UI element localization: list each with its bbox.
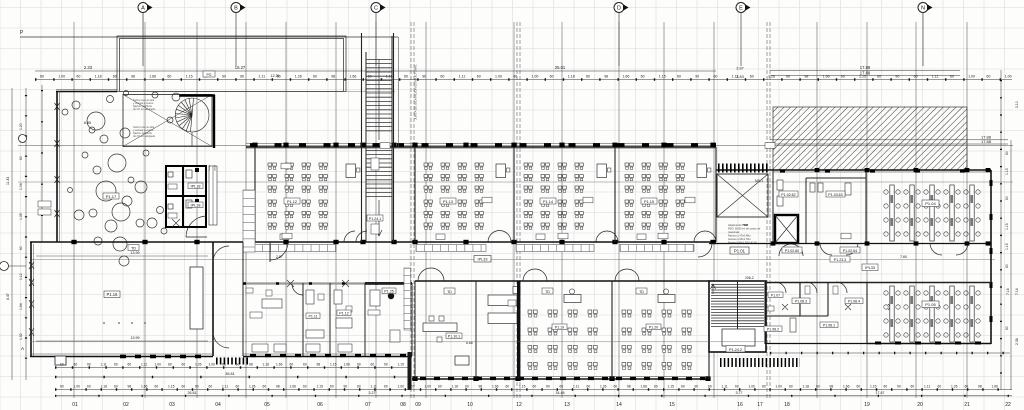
svg-text:1.11: 1.11 [573,384,579,388]
svg-text:03: 03 [169,402,175,408]
svg-text:60: 60 [240,74,244,78]
svg-text:60: 60 [789,384,793,388]
svg-text:1.15: 1.15 [330,362,337,366]
svg-text:1.11: 1.11 [932,74,939,78]
svg-text:P1.17: P1.17 [106,194,117,199]
svg-text:P1.02.62: P1.02.62 [781,193,795,197]
svg-text:60: 60 [677,74,681,78]
svg-text:1.11: 1.11 [722,384,728,388]
svg-text:60: 60 [357,384,361,388]
svg-text:1.15: 1.15 [1005,168,1009,175]
svg-text:1.11: 1.11 [371,384,377,388]
svg-text:15.27: 15.27 [235,65,246,70]
svg-text:15: 15 [669,402,675,408]
svg-text:C: C [374,6,378,12]
svg-text:1.26: 1.26 [249,384,256,388]
svg-text:1.15: 1.15 [870,384,877,388]
svg-text:60: 60 [263,384,267,388]
svg-text:1.11: 1.11 [459,74,466,78]
svg-text:1.66: 1.66 [149,74,156,78]
svg-text:TD: TD [447,290,452,294]
svg-text:60: 60 [1005,151,1009,155]
svg-text:60: 60 [182,384,186,388]
svg-text:60: 60 [950,74,954,78]
svg-text:09: 09 [415,402,421,408]
svg-text:1.15: 1.15 [186,74,193,78]
svg-text:05: 05 [264,402,270,408]
svg-text:02: 02 [123,402,129,408]
svg-text:IPL18: IPL18 [191,204,201,208]
svg-text:60: 60 [40,74,44,78]
svg-text:60: 60 [236,384,240,388]
svg-text:1.15: 1.15 [859,74,866,78]
svg-text:P1.02.64: P1.02.64 [843,249,857,253]
svg-text:90: 90 [344,384,348,388]
svg-text:90: 90 [222,74,226,78]
svg-text:60: 60 [654,384,658,388]
svg-text:17: 17 [757,402,763,408]
svg-text:60: 60 [411,384,415,388]
svg-text:1.15: 1.15 [317,384,324,388]
svg-text:1.12: 1.12 [19,273,23,280]
svg-text:2.87: 2.87 [276,255,283,259]
svg-text:1.11: 1.11 [732,74,739,78]
svg-text:P1.15: P1.15 [644,200,654,204]
svg-text:60: 60 [114,384,118,388]
svg-text:04: 04 [215,402,221,408]
svg-text:Ranura 1.47x0.48m: Ranura 1.47x0.48m [728,234,751,238]
svg-text:1.15: 1.15 [668,384,675,388]
svg-text:1.66: 1.66 [349,74,356,78]
svg-text:60: 60 [113,74,117,78]
svg-text:90: 90 [384,362,388,366]
svg-text:60: 60 [550,74,554,78]
svg-text:60: 60 [168,362,172,366]
svg-text:60: 60 [965,384,969,388]
svg-text:19: 19 [864,402,870,408]
svg-text:de NY en adelgado: de NY en adelgado [133,134,156,138]
svg-text:Alojamiento TRM: Alojamiento TRM [728,223,748,227]
svg-text:98: 98 [804,74,808,78]
svg-text:P1.03.63: P1.03.63 [828,193,842,197]
svg-text:E: E [739,6,743,12]
svg-text:P1.08.3: P1.08.3 [795,300,807,304]
svg-text:1.18: 1.18 [568,74,575,78]
svg-text:25.01: 25.01 [555,65,566,70]
svg-text:01: 01 [72,402,78,408]
svg-text:1.15: 1.15 [398,362,405,366]
svg-text:60: 60 [19,246,23,250]
svg-text:1.66: 1.66 [344,362,351,366]
svg-text:60: 60 [465,384,469,388]
svg-text:3.87: 3.87 [736,67,743,71]
svg-text:B: B [234,6,238,12]
svg-text:60: 60 [438,384,442,388]
svg-text:1.00: 1.00 [58,74,65,78]
svg-text:1.00: 1.00 [531,74,538,78]
svg-text:N: N [921,6,925,12]
svg-text:60: 60 [713,74,717,78]
svg-text:60: 60 [750,74,754,78]
svg-text:60: 60 [506,384,510,388]
svg-text:1.66: 1.66 [492,384,499,388]
svg-text:13.99: 13.99 [131,336,140,340]
svg-text:60: 60 [708,384,712,388]
svg-text:1.04: 1.04 [19,183,23,190]
svg-text:1.00: 1.00 [749,384,756,388]
svg-text:90: 90 [546,384,550,388]
svg-text:P1.16: P1.16 [107,292,119,297]
svg-text:98: 98 [131,74,135,78]
svg-text:90: 90 [695,74,699,78]
svg-text:16: 16 [737,402,743,408]
svg-text:60: 60 [76,74,80,78]
svg-text:7.16: 7.16 [1006,288,1010,295]
svg-text:IPL18: IPL18 [191,185,201,189]
svg-text:26.81: 26.81 [188,391,197,395]
svg-text:60: 60 [222,362,226,366]
svg-text:de NY en adelgado: de NY en adelgado [133,107,156,111]
svg-text:2.33: 2.33 [84,65,93,70]
svg-text:60: 60 [60,362,64,366]
svg-text:1.15: 1.15 [519,384,526,388]
svg-text:P1.02.60: P1.02.60 [785,249,799,253]
svg-text:1.66: 1.66 [276,362,283,366]
svg-text:1.15: 1.15 [168,384,175,388]
svg-text:21: 21 [964,402,970,408]
svg-text:60: 60 [857,384,861,388]
svg-text:P1.01: P1.01 [734,249,746,254]
svg-text:60: 60 [155,384,159,388]
svg-text:7.16: 7.16 [1015,288,1019,295]
svg-text:MS-1: MS-1 [755,179,763,183]
svg-text:1.00: 1.00 [776,384,783,388]
svg-text:90: 90 [695,384,699,388]
svg-text:P1.20: P1.20 [649,325,658,329]
svg-text:1.26: 1.26 [295,74,302,78]
svg-text:P1.11: P1.11 [308,315,317,319]
svg-text:11.43: 11.43 [6,177,10,185]
svg-text:36.81: 36.81 [225,372,235,376]
svg-text:07: 07 [365,402,371,408]
svg-text:1.00: 1.00 [968,74,975,78]
svg-text:12.35: 12.35 [271,74,280,78]
svg-text:34.48: 34.48 [556,391,565,395]
svg-text:60: 60 [681,384,685,388]
svg-text:1.15: 1.15 [1005,243,1009,250]
svg-text:60: 60 [290,362,294,366]
svg-text:98: 98 [479,384,483,388]
svg-text:7.60: 7.60 [900,255,907,259]
svg-text:IPL33: IPL33 [478,258,488,262]
svg-text:1.18: 1.18 [95,74,102,78]
svg-text:P1.10.1: P1.10.1 [448,335,460,339]
svg-text:P1.04: P1.04 [925,201,936,206]
svg-text:1.18: 1.18 [803,384,810,388]
svg-text:P1.23.3: P1.23.3 [834,258,846,262]
svg-text:13.99: 13.99 [131,251,140,255]
svg-text:1.66: 1.66 [141,384,148,388]
svg-text:1.00: 1.00 [74,384,81,388]
svg-text:60: 60 [938,384,942,388]
svg-text:13: 13 [564,402,570,408]
svg-text:206-2: 206-2 [745,276,754,280]
svg-text:90: 90 [422,74,426,78]
svg-text:12: 12 [516,402,522,408]
svg-text:60: 60 [586,74,590,78]
svg-text:D: D [617,6,621,12]
svg-text:1.66: 1.66 [290,384,297,388]
svg-text:60: 60 [911,384,915,388]
svg-text:P1.25: P1.25 [384,290,393,294]
svg-text:1.26: 1.26 [600,384,607,388]
svg-text:1.00: 1.00 [425,384,432,388]
svg-text:P1.12: P1.12 [287,200,297,204]
svg-text:98: 98 [604,74,608,78]
svg-text:60: 60 [1005,326,1009,330]
svg-text:maquinas: maquinas [728,230,740,234]
svg-text:06: 06 [317,402,323,408]
svg-text:17.88: 17.88 [860,65,871,70]
svg-text:60: 60 [357,362,361,366]
svg-text:TD: TD [639,290,644,294]
svg-text:P1.08.2: P1.08.2 [767,328,779,332]
svg-text:1.26: 1.26 [951,384,958,388]
svg-text:P1.12: P1.12 [339,312,348,316]
svg-text:P1.19: P1.19 [555,325,564,329]
svg-text:P1.24.1: P1.24.1 [369,217,381,221]
svg-text:60: 60 [303,362,307,366]
svg-text:1.11: 1.11 [258,74,265,78]
svg-text:1.00: 1.00 [1005,74,1012,78]
svg-text:P1.14: P1.14 [543,200,553,204]
svg-text:P1.24.2: P1.24.2 [729,348,742,352]
svg-text:60: 60 [914,74,918,78]
svg-text:14: 14 [616,402,622,408]
svg-text:1.11: 1.11 [101,362,107,366]
svg-text:60: 60 [533,384,537,388]
svg-text:1.66: 1.66 [823,74,830,78]
svg-text:1.18: 1.18 [101,384,108,388]
svg-text:1.26: 1.26 [195,362,202,366]
svg-text:60: 60 [816,384,820,388]
svg-text:98: 98 [331,74,335,78]
svg-text:1.66: 1.66 [992,384,999,388]
svg-text:RSG, 50/30 en de cuarto de: RSG, 50/30 en de cuarto de [728,227,761,231]
svg-text:17.87: 17.87 [876,391,885,395]
svg-text:IPL33: IPL33 [865,266,875,270]
svg-text:90: 90 [895,74,899,78]
svg-text:60: 60 [236,362,240,366]
svg-text:60: 60 [1005,264,1009,268]
svg-text:1.18: 1.18 [263,362,270,366]
svg-text:2.10: 2.10 [1015,101,1019,108]
svg-text:1.00: 1.00 [398,384,405,388]
svg-text:60: 60 [884,384,888,388]
svg-text:60: 60 [1005,196,1009,200]
svg-text:PO: PO [207,73,212,77]
svg-text:60: 60 [87,384,91,388]
svg-text:A: A [141,6,145,12]
svg-text:2.38: 2.38 [1015,338,1019,345]
svg-text:1.00: 1.00 [209,362,216,366]
svg-text:60: 60 [440,74,444,78]
svg-text:1.15: 1.15 [1005,223,1009,230]
svg-text:60: 60 [384,384,388,388]
svg-text:60: 60 [513,74,517,78]
svg-text:1.64: 1.64 [19,303,23,310]
svg-text:60: 60 [303,384,307,388]
svg-text:60: 60 [762,384,766,388]
svg-text:1.11: 1.11 [222,384,228,388]
svg-text:1.11: 1.11 [141,362,147,366]
svg-text:60: 60 [209,384,213,388]
svg-text:98: 98 [128,384,132,388]
svg-text:1.20: 1.20 [19,123,23,130]
svg-text:8.47: 8.47 [6,293,10,300]
svg-text:22: 22 [1005,402,1011,408]
svg-text:TD: TD [545,290,550,294]
svg-text:60: 60 [641,74,645,78]
svg-text:60: 60 [560,384,564,388]
svg-text:60: 60 [786,74,790,78]
svg-text:1.66: 1.66 [843,384,850,388]
svg-text:60: 60 [735,384,739,388]
svg-text:1.11: 1.11 [924,384,930,388]
svg-text:60: 60 [877,74,881,78]
svg-text:60: 60 [167,74,171,78]
svg-text:A: A [21,346,24,351]
svg-text:60: 60 [404,74,408,78]
svg-text:3.77: 3.77 [736,391,743,395]
svg-text:18: 18 [784,402,790,408]
svg-text:1.15: 1.15 [659,74,666,78]
svg-text:JUNTA DE DILATACION ESTRUCTURA: JUNTA DE DILATACION ESTRUCTURAL [414,64,418,120]
svg-text:P1.05: P1.05 [925,302,936,307]
svg-text:98: 98 [978,384,982,388]
svg-text:3.27: 3.27 [369,391,376,395]
svg-text:60: 60 [986,74,990,78]
svg-text:60: 60 [19,156,23,160]
svg-text:1.18: 1.18 [452,384,459,388]
svg-text:1.66: 1.66 [622,74,629,78]
svg-text:P1.08.1: P1.08.1 [823,324,835,328]
svg-text:60: 60 [128,362,132,366]
svg-text:6.85: 6.85 [84,121,91,125]
svg-text:98: 98 [249,362,253,366]
svg-text:98: 98 [627,384,631,388]
svg-text:Acceso 1.06x1.70m: Acceso 1.06x1.70m [728,237,751,241]
svg-text:60: 60 [614,384,618,388]
svg-text:1.26: 1.26 [768,74,775,78]
svg-text:60: 60 [587,384,591,388]
svg-text:P1.07: P1.07 [771,294,780,298]
svg-text:60: 60 [313,74,317,78]
svg-text:90: 90 [87,362,91,366]
svg-text:60: 60 [477,74,481,78]
svg-text:1.00: 1.00 [495,74,502,78]
svg-text:20: 20 [917,402,923,408]
svg-text:98: 98 [317,362,321,366]
svg-text:P1.13: P1.13 [443,200,453,204]
svg-text:TD: TD [131,246,136,250]
svg-text:60: 60 [114,362,118,366]
svg-text:1.00: 1.00 [155,362,162,366]
svg-text:P1.08.4: P1.08.4 [848,300,860,304]
svg-text:60: 60 [841,74,845,78]
svg-text:1.52: 1.52 [19,333,23,340]
svg-text:98: 98 [276,384,280,388]
svg-text:90: 90 [195,384,199,388]
svg-text:1.66: 1.66 [641,384,648,388]
svg-text:08: 08 [400,402,406,408]
svg-text:10: 10 [467,402,473,408]
svg-text:1.39: 1.39 [19,213,23,220]
svg-text:17.88: 17.88 [981,139,992,144]
svg-text:60: 60 [330,384,334,388]
svg-text:98: 98 [830,384,834,388]
svg-text:60: 60 [74,362,78,366]
svg-text:60: 60 [182,362,186,366]
svg-text:60: 60 [371,362,375,366]
svg-text:60: 60 [60,384,64,388]
svg-text:90: 90 [897,384,901,388]
